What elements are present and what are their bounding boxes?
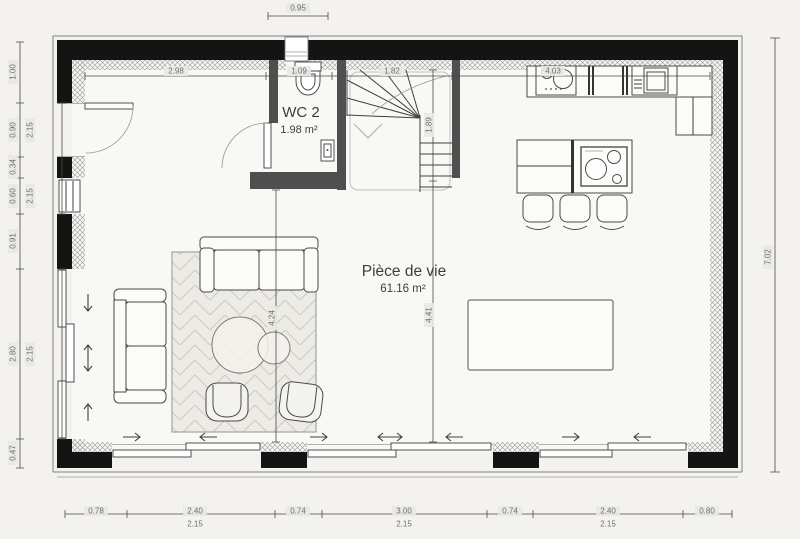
counter-divider xyxy=(588,66,590,95)
living-room-name: Pièce de vie xyxy=(362,263,446,280)
svg-text:2.80: 2.80 xyxy=(9,346,18,362)
wc-wall-bottom xyxy=(250,172,346,189)
dim-label: 2.98 xyxy=(164,66,188,76)
floor-plan: 0.95 2.98 1.09 1.82 4.03 1.00 0.90 0.34 … xyxy=(0,0,800,539)
wc-room-area: 1.98 m² xyxy=(280,124,318,136)
dim-label: 1.89 xyxy=(424,113,434,137)
svg-text:3.00: 3.00 xyxy=(396,507,412,516)
dim-label: 1.09 xyxy=(287,66,311,76)
svg-text:0.91: 0.91 xyxy=(9,233,18,249)
dim-label: 0.47 xyxy=(8,441,18,465)
svg-text:2.15: 2.15 xyxy=(26,346,35,362)
svg-text:2.15: 2.15 xyxy=(26,122,35,138)
dining-table xyxy=(468,300,613,370)
sofa-top xyxy=(200,237,318,292)
wc-room-name: WC 2 xyxy=(282,104,320,121)
dim-label: 0.95 xyxy=(286,3,310,13)
dim-label: 1.00 xyxy=(8,60,18,84)
svg-text:2.40: 2.40 xyxy=(600,507,616,516)
dim-label: 2.40 xyxy=(596,506,620,516)
wc-door-leaf xyxy=(264,123,271,168)
svg-text:1.09: 1.09 xyxy=(291,67,307,76)
armchair-right xyxy=(278,381,324,424)
dim-label: 0.60 xyxy=(8,184,18,208)
dim-label: 4.41 xyxy=(424,303,434,327)
armchair-left xyxy=(206,383,248,421)
dim-label: 2.15 xyxy=(600,520,616,529)
coffee-table-small xyxy=(258,332,290,364)
svg-text:7.02: 7.02 xyxy=(764,249,773,265)
door-leaf xyxy=(85,103,133,109)
top-vent xyxy=(285,37,308,61)
svg-text:0.74: 0.74 xyxy=(502,507,518,516)
kitchen-return-cabinet xyxy=(676,97,712,135)
dim-label: 3.00 xyxy=(392,506,416,516)
dim-label: 2.15 xyxy=(25,184,35,208)
building-shell xyxy=(53,36,742,477)
svg-text:2.98: 2.98 xyxy=(168,67,184,76)
counter-divider xyxy=(622,66,624,95)
svg-text:0.80: 0.80 xyxy=(699,507,715,516)
dim-label: 0.80 xyxy=(695,506,719,516)
dim-label: 2.80 xyxy=(8,342,18,366)
dim-label: 7.02 xyxy=(763,245,773,269)
left-sliding-bay xyxy=(58,270,74,438)
living-room-area: 61.16 m² xyxy=(380,283,426,295)
dim-label: 4.03 xyxy=(541,66,565,76)
svg-text:1.00: 1.00 xyxy=(9,64,18,80)
svg-text:2.40: 2.40 xyxy=(187,507,203,516)
svg-text:2.15: 2.15 xyxy=(600,520,616,529)
dim-label: 4.24 xyxy=(267,306,277,330)
dim-label: 0.91 xyxy=(8,229,18,253)
svg-text:0.34: 0.34 xyxy=(9,159,18,175)
kitchen-island xyxy=(517,140,632,193)
svg-text:0.60: 0.60 xyxy=(9,188,18,204)
counter-divider xyxy=(626,66,628,95)
cooktop-icon xyxy=(581,147,627,186)
svg-text:4.41: 4.41 xyxy=(425,307,434,323)
svg-text:0.95: 0.95 xyxy=(290,4,306,13)
svg-text:1.89: 1.89 xyxy=(425,117,434,133)
svg-text:0.78: 0.78 xyxy=(88,507,104,516)
floor-plan-page: 0.95 2.98 1.09 1.82 4.03 1.00 0.90 0.34 … xyxy=(0,0,800,539)
wc-radiator-icon xyxy=(321,140,334,161)
wc-wall-left xyxy=(269,60,278,123)
sofa-left xyxy=(114,289,166,403)
floor xyxy=(72,60,723,452)
svg-text:0.74: 0.74 xyxy=(290,507,306,516)
dim-label: 2.15 xyxy=(25,342,35,366)
svg-text:2.15: 2.15 xyxy=(187,520,203,529)
dim-label: 2.15 xyxy=(187,520,203,529)
dim-label: 1.82 xyxy=(380,66,404,76)
dim-label: 0.34 xyxy=(8,155,18,179)
svg-text:1.82: 1.82 xyxy=(384,67,400,76)
dim-label: 2.15 xyxy=(396,520,412,529)
dim-label: 2.15 xyxy=(25,118,35,142)
svg-text:4.03: 4.03 xyxy=(545,67,561,76)
dim-label: 0.74 xyxy=(498,506,522,516)
dim-label: 2.40 xyxy=(183,506,207,516)
svg-text:2.15: 2.15 xyxy=(26,188,35,204)
dim-label: 0.90 xyxy=(8,118,18,142)
svg-text:0.47: 0.47 xyxy=(9,445,18,461)
dim-label: 0.78 xyxy=(84,506,108,516)
dim-label: 0.74 xyxy=(286,506,310,516)
stair-rail-wall xyxy=(452,60,460,178)
svg-text:2.15: 2.15 xyxy=(396,520,412,529)
wc-wall-right xyxy=(337,60,346,190)
svg-text:0.90: 0.90 xyxy=(9,122,18,138)
counter-divider xyxy=(592,66,594,95)
svg-text:4.24: 4.24 xyxy=(268,310,277,326)
